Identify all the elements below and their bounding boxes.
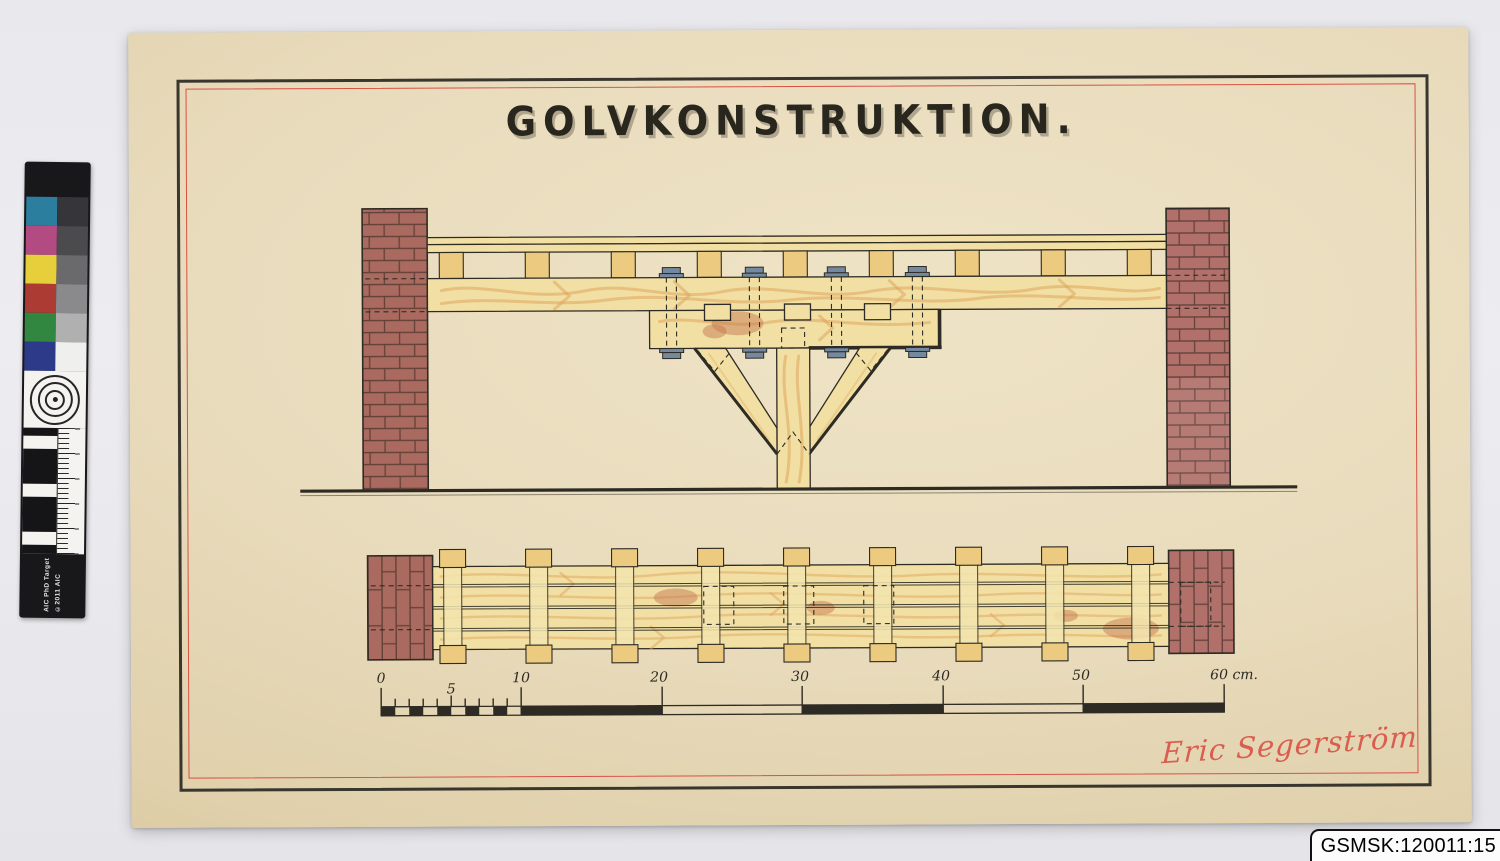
plan-view <box>368 546 1234 664</box>
color-patch-red <box>25 284 56 313</box>
ruler-white-block <box>23 436 57 449</box>
target-ruler-ticks <box>56 428 86 554</box>
plan-blocking <box>698 548 724 662</box>
target-label-line2: ©2011 AIC <box>54 554 63 612</box>
gray-patch-white <box>55 342 86 371</box>
scale-tick-label: 10 <box>512 670 530 686</box>
center-post <box>777 348 811 489</box>
plan-left-pillar <box>368 556 433 660</box>
focus-target-icon <box>24 371 87 429</box>
target-center-dot <box>52 397 57 402</box>
color-patch-green <box>25 313 56 342</box>
joist-blocking <box>783 251 807 277</box>
ground-line <box>300 487 1297 496</box>
joist-blocking <box>611 252 635 278</box>
target-ruler-blocks <box>22 428 58 554</box>
left-brick-pillar <box>362 209 428 491</box>
ruler-white-block <box>23 484 57 497</box>
catalog-number-text: GSMSK:120011:15 <box>1321 835 1496 858</box>
joist-blocking <box>439 252 463 278</box>
color-patch-blue <box>24 342 55 371</box>
construction-drawing: 0 5 10 20 30 40 50 60 cm. <box>128 27 1471 828</box>
color-patch-cyan <box>26 197 57 226</box>
color-patch-yellow <box>25 255 56 284</box>
water-stain <box>703 324 727 338</box>
scale-tick-label: 5 <box>447 682 456 698</box>
color-calibration-target: AIC PhD Target ©2011 AIC <box>19 162 91 619</box>
drawing-sheet: GOLVKONSTRUKTION. <box>128 27 1471 828</box>
color-patch-magenta <box>26 226 57 255</box>
target-label: AIC PhD Target ©2011 AIC <box>19 554 86 613</box>
archive-photo: AIC PhD Target ©2011 AIC GOLVKONSTRUKTIO… <box>0 0 1500 861</box>
scale-tick-label: 60 cm. <box>1210 667 1258 683</box>
joist-blocking <box>1041 250 1065 276</box>
right-brick-pillar <box>1166 208 1230 487</box>
plan-blocking-row <box>440 546 1154 663</box>
scale-tick-label: 50 <box>1072 668 1090 684</box>
plan-blocking <box>784 548 810 662</box>
target-ruler <box>22 428 86 555</box>
joist-blocking <box>869 251 893 277</box>
scale-bar: 0 5 10 20 30 40 50 60 cm. <box>377 667 1259 716</box>
scale-tick-label: 40 <box>931 668 950 684</box>
catalog-number-label: GSMSK:120011:15 <box>1310 829 1500 861</box>
scale-tick-label: 20 <box>649 670 668 686</box>
plan-right-pillar <box>1169 550 1234 653</box>
plan-blocking <box>440 549 466 663</box>
plan-blocking <box>526 549 552 663</box>
scale-tick-label: 0 <box>377 671 386 687</box>
plan-blocking <box>612 549 638 663</box>
scale-tick-label: 30 <box>791 669 809 685</box>
plan-blocking <box>870 548 896 662</box>
joist-blocking <box>697 251 721 277</box>
color-swatch-grid <box>24 197 88 372</box>
gray-patch-5 <box>56 313 87 342</box>
gray-patch-2 <box>57 226 88 255</box>
elevation-view <box>299 205 1297 496</box>
joist-blocking-row <box>439 249 1151 278</box>
ruler-white-block <box>22 532 56 545</box>
gray-patch-3 <box>56 255 87 284</box>
joist-blocking <box>525 252 549 278</box>
plan-blocking <box>1042 547 1068 661</box>
plan-blocking <box>956 547 982 661</box>
gray-patch-4 <box>56 284 87 313</box>
joist-blocking <box>955 250 979 276</box>
gray-patch-1 <box>57 197 88 226</box>
target-label-line1: AIC PhD Target <box>43 554 52 612</box>
joist-blocking <box>1127 249 1151 275</box>
plan-blocking <box>1128 546 1154 660</box>
